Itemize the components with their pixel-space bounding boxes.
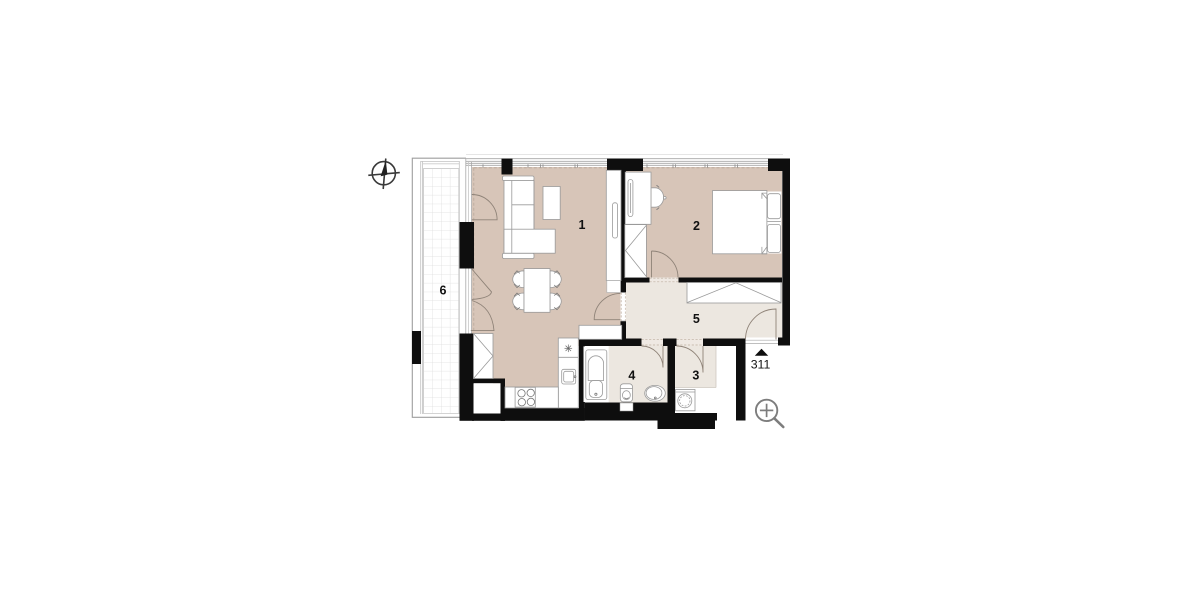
svg-text:3: 3 xyxy=(692,369,699,383)
svg-text:4: 4 xyxy=(628,369,635,383)
svg-text:1: 1 xyxy=(579,218,586,232)
svg-text:6: 6 xyxy=(440,284,447,298)
svg-text:2: 2 xyxy=(693,219,700,233)
svg-text:5: 5 xyxy=(693,312,700,326)
svg-text:311: 311 xyxy=(751,357,771,371)
